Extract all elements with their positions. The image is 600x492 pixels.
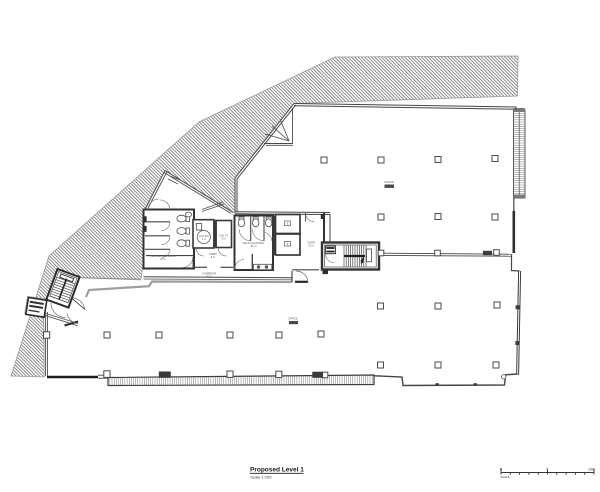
svg-text:OFFICE: OFFICE: [384, 180, 394, 184]
svg-text:11 m: 11 m: [308, 245, 313, 248]
svg-text:8 m: 8 m: [211, 256, 215, 259]
svg-text:32 m: 32 m: [160, 257, 166, 261]
svg-text:0: 0: [500, 468, 502, 472]
svg-text:3 m: 3 m: [221, 238, 225, 241]
svg-text:30 m: 30 m: [251, 244, 257, 248]
svg-text:OFFICE: OFFICE: [288, 317, 298, 321]
svg-text:10m: 10m: [588, 468, 595, 472]
svg-text:Scale 1:100: Scale 1:100: [250, 475, 272, 480]
svg-text:Proposed Level 1: Proposed Level 1: [250, 467, 304, 474]
svg-text:30 m: 30 m: [206, 275, 212, 279]
svg-text:5: 5: [546, 468, 548, 472]
svg-text:SCALE: SCALE: [501, 475, 510, 479]
svg-text:4 m: 4 m: [202, 238, 206, 241]
